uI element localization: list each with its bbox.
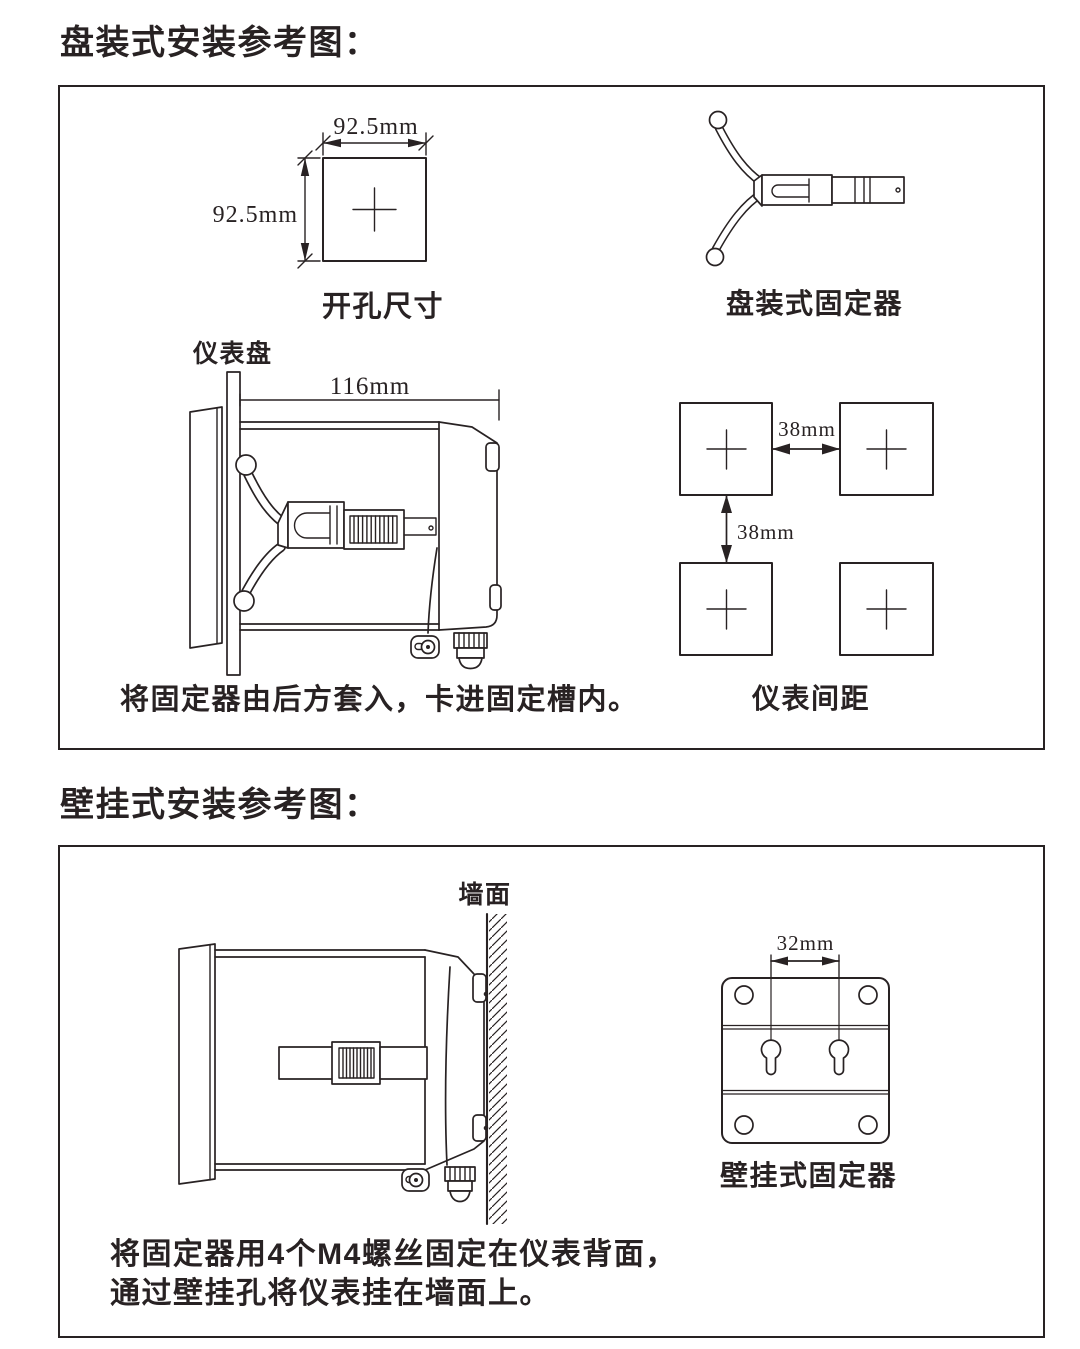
panel-fixer-caption: 盘装式固定器 [726, 288, 896, 320]
spacing-v-label: 38mm [737, 521, 795, 543]
wall-mount-caption-line1: 将固定器用4个M4螺丝固定在仪表背面， [110, 1238, 677, 1273]
depth-dim-label: 116mm [300, 374, 440, 400]
wall-hatch [489, 914, 507, 1224]
panel-section-title: 盘装式安装参考图： [60, 24, 380, 63]
cutout-height-label: 92.5mm [140, 203, 298, 228]
cutout-caption: 开孔尺寸 [313, 291, 453, 324]
spacing-h-label: 38mm [773, 418, 841, 440]
wall-section-box: 墙面 32mm 壁挂式固定器 将固定器用4个M4螺丝固定在仪表背面， 通过壁挂孔… [58, 845, 1045, 1338]
wall-side-view-drawing [179, 914, 507, 1224]
panel-mount-caption: 将固定器由后方套入，卡进固定槽内。 [120, 684, 639, 717]
wall-fixer-drawing [722, 955, 889, 1143]
cutout-square-drawing [298, 133, 433, 268]
manual-page: 盘装式安装参考图： [0, 0, 1080, 1349]
panel-section-box: 92.5mm 92.5mm 开孔尺寸 盘装式固定器 仪表盘 116mm 将固定器… [58, 85, 1045, 750]
wall-label: 墙面 [445, 881, 525, 910]
wall-section-title: 壁挂式安装参考图： [60, 786, 380, 825]
cutout-width-label: 92.5mm [296, 115, 456, 140]
wall-fixer-caption: 壁挂式固定器 [720, 1160, 890, 1192]
spacing-caption: 仪表间距 [731, 683, 891, 715]
wall-mount-caption-line2: 通过壁挂孔将仪表挂在墙面上。 [110, 1277, 551, 1312]
panel-hatch [227, 372, 240, 675]
panel-label: 仪表盘 [193, 340, 273, 369]
panel-mount-figure [60, 87, 1042, 747]
panel-fixer-drawing [707, 112, 905, 266]
panel-side-view-drawing [190, 372, 501, 675]
wall-fixer-dim-label: 32mm [763, 932, 848, 954]
